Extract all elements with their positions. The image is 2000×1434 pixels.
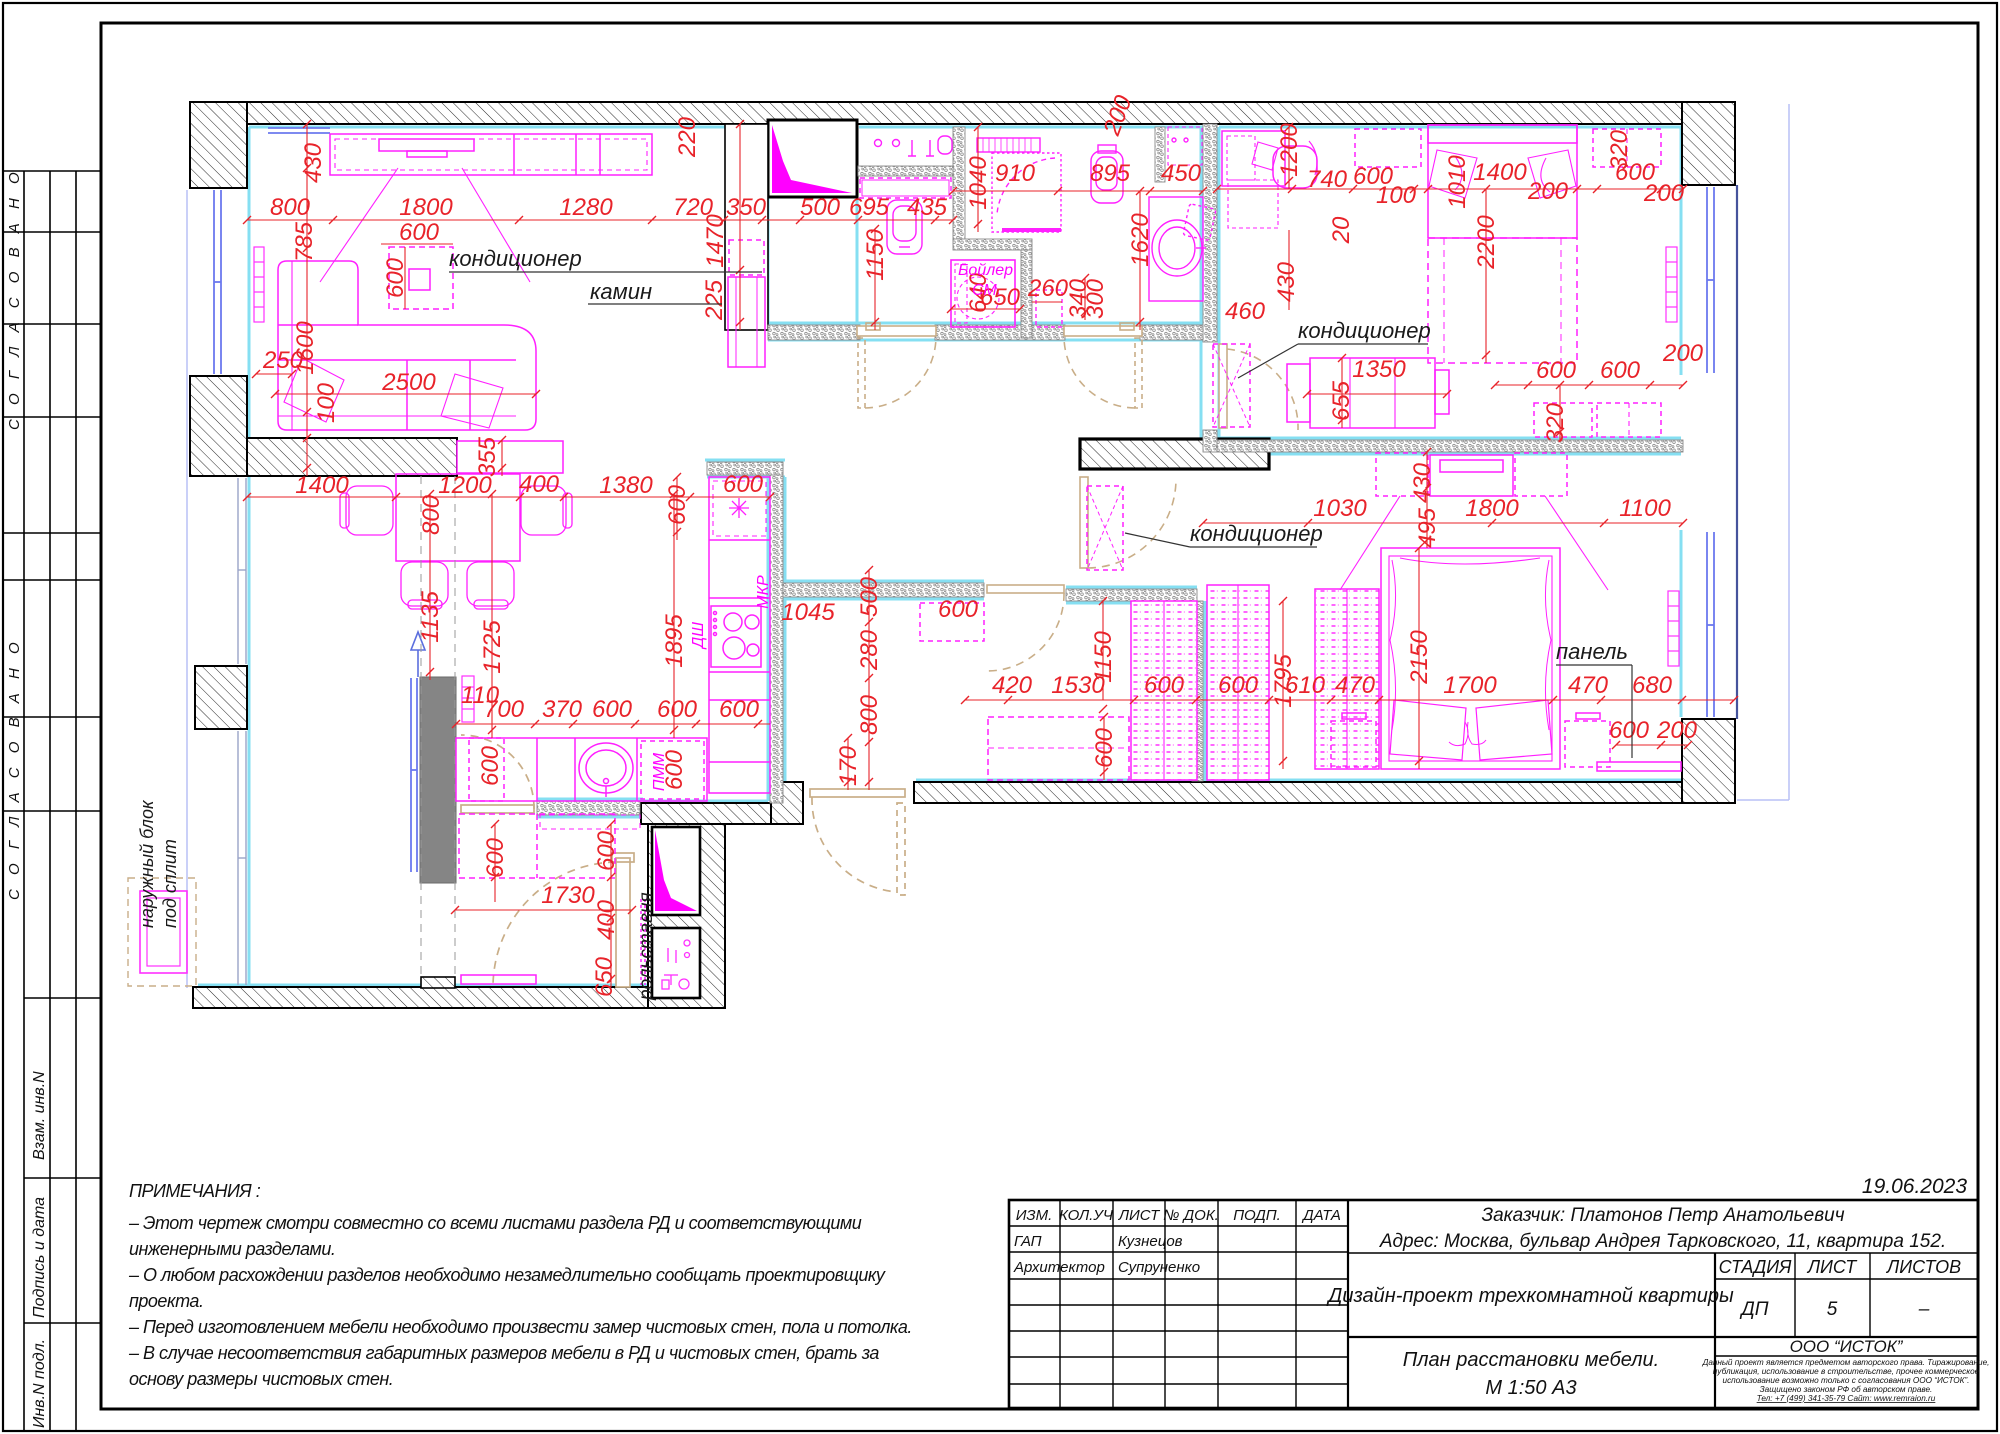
svg-text:кондиционер: кондиционер	[1190, 521, 1323, 546]
svg-text:№ ДОК.: № ДОК.	[1163, 1207, 1219, 1224]
svg-text:1030: 1030	[1313, 495, 1367, 522]
svg-text:740: 740	[1307, 166, 1348, 193]
svg-text:1795: 1795	[1270, 654, 1297, 708]
svg-text:использование возможно только: использование возможно только с согласов…	[1723, 1376, 1970, 1385]
svg-text:Адрес: Москва, бульвар Андрея: Адрес: Москва, бульвар Андрея Тарковског…	[1379, 1231, 1946, 1252]
svg-text:220: 220	[674, 116, 701, 158]
svg-text:1730: 1730	[541, 882, 595, 909]
svg-text:430: 430	[300, 142, 327, 183]
svg-text:600: 600	[593, 830, 620, 871]
svg-text:1470: 1470	[702, 214, 729, 268]
svg-text:1895: 1895	[661, 614, 688, 668]
svg-text:– В случае несоответствия габа: – В случае несоответствия габаритных раз…	[128, 1343, 879, 1363]
svg-text:600: 600	[1091, 727, 1118, 768]
svg-text:260: 260	[1027, 275, 1069, 302]
svg-text:20: 20	[1328, 216, 1355, 244]
svg-text:600: 600	[1600, 357, 1641, 384]
svg-text:– Этот чертеж смотри совместно: – Этот чертеж смотри совместно со всеми …	[128, 1213, 862, 1233]
svg-text:2200: 2200	[1473, 215, 1500, 270]
svg-text:400: 400	[519, 471, 560, 498]
svg-text:ИЗМ.: ИЗМ.	[1016, 1207, 1053, 1224]
svg-text:наружный блок: наружный блок	[137, 799, 157, 928]
svg-text:300: 300	[1082, 278, 1109, 319]
svg-text:1380: 1380	[599, 472, 653, 499]
svg-text:200: 200	[1643, 180, 1685, 207]
svg-text:План расстановки мебели.: План расстановки мебели.	[1403, 1349, 1659, 1371]
svg-text:– Перед изготовлением мебели н: – Перед изготовлением мебели необходимо …	[128, 1317, 912, 1337]
svg-text:инженерными разделами.: инженерными разделами.	[129, 1239, 335, 1259]
svg-text:320: 320	[1606, 129, 1633, 170]
svg-text:495: 495	[1414, 507, 1441, 548]
svg-text:100: 100	[313, 382, 340, 423]
svg-text:785: 785	[291, 221, 318, 262]
svg-text:450: 450	[1161, 160, 1202, 187]
svg-text:Архитектор: Архитектор	[1013, 1259, 1105, 1276]
svg-text:основу размеры чистовых стен.: основу размеры чистовых стен.	[129, 1369, 393, 1389]
svg-text:ПОДП.: ПОДП.	[1233, 1207, 1281, 1224]
svg-text:600: 600	[664, 484, 691, 525]
svg-text:1600: 1600	[292, 321, 319, 375]
svg-text:800: 800	[270, 194, 311, 221]
svg-text:кондиционер: кондиционер	[1298, 318, 1431, 343]
svg-text:1010: 1010	[1444, 155, 1471, 209]
svg-text:600: 600	[938, 596, 979, 623]
svg-text:600: 600	[382, 257, 409, 298]
svg-text:600: 600	[719, 696, 760, 723]
svg-text:600: 600	[657, 696, 698, 723]
svg-text:камин: камин	[590, 279, 652, 304]
svg-text:680: 680	[1632, 672, 1673, 699]
svg-text:1400: 1400	[1473, 159, 1527, 186]
svg-text:600: 600	[1144, 672, 1185, 699]
svg-text:ООО “ИСТОК”: ООО “ИСТОК”	[1790, 1337, 1904, 1356]
svg-text:– О любом расхождении разделов: – О любом расхождении разделов необходим…	[128, 1265, 886, 1285]
svg-text:600: 600	[1536, 357, 1577, 384]
svg-text:460: 460	[1225, 298, 1266, 325]
svg-text:100: 100	[1376, 182, 1417, 209]
svg-text:публикация, использование в ст: публикация, использование в строительств…	[1713, 1367, 1980, 1376]
svg-text:Тел: +7 (499) 341-35-79 Сайт:: Тел: +7 (499) 341-35-79 Сайт: www.remrai…	[1757, 1394, 1936, 1403]
svg-text:Дизайн-проект трехкомнатной кв: Дизайн-проект трехкомнатной квартиры	[1326, 1285, 1734, 1307]
svg-text:1800: 1800	[399, 194, 453, 221]
svg-text:1150: 1150	[862, 229, 889, 281]
svg-text:400: 400	[593, 899, 620, 940]
svg-text:420: 420	[992, 672, 1033, 699]
svg-text:1045: 1045	[781, 599, 835, 626]
svg-text:1725: 1725	[479, 620, 506, 674]
svg-text:280: 280	[856, 629, 883, 671]
svg-text:СТАДИЯ: СТАДИЯ	[1719, 1257, 1793, 1277]
svg-text:1700: 1700	[1443, 672, 1497, 699]
svg-text:320: 320	[1542, 402, 1569, 443]
svg-text:2150: 2150	[1406, 630, 1433, 685]
svg-text:ГАП: ГАП	[1014, 1233, 1042, 1250]
svg-text:рольставня: рольставня	[636, 892, 657, 1001]
svg-text:470: 470	[1568, 672, 1609, 699]
svg-text:800: 800	[856, 694, 883, 735]
svg-text:СМ: СМ	[972, 282, 997, 299]
svg-text:МКР: МКР	[755, 575, 772, 609]
svg-text:350: 350	[726, 194, 767, 221]
svg-text:1150: 1150	[1090, 631, 1117, 683]
svg-text:С О Г Л А С О В А Н О: С О Г Л А С О В А Н О	[6, 637, 23, 900]
svg-text:1135: 1135	[417, 591, 444, 643]
svg-text:М 1:50 А3: М 1:50 А3	[1485, 1377, 1576, 1399]
svg-text:1400: 1400	[295, 472, 349, 499]
svg-text:910: 910	[995, 160, 1036, 187]
svg-text:Подпись и дата: Подпись и дата	[31, 1197, 48, 1318]
svg-text:Супруненко: Супруненко	[1118, 1259, 1200, 1276]
svg-text:800: 800	[418, 494, 445, 535]
svg-text:ЛИСТ: ЛИСТ	[1807, 1257, 1859, 1277]
svg-text:430: 430	[1409, 462, 1436, 503]
svg-text:ДП: ДП	[1739, 1299, 1768, 1320]
svg-text:19.06.2023: 19.06.2023	[1862, 1175, 1967, 1198]
svg-text:–: –	[1918, 1299, 1930, 1320]
svg-text:проекта.: проекта.	[129, 1291, 203, 1311]
svg-text:600: 600	[477, 745, 504, 786]
svg-text:1200: 1200	[1276, 123, 1303, 177]
svg-text:650: 650	[591, 956, 618, 997]
svg-text:5: 5	[1827, 1299, 1838, 1320]
svg-text:кондиционер: кондиционер	[449, 246, 582, 271]
svg-text:Бойлер: Бойлер	[958, 262, 1013, 279]
svg-text:Взам. инв.N: Взам. инв.N	[31, 1071, 48, 1160]
svg-text:470: 470	[1335, 672, 1376, 699]
svg-text:435: 435	[907, 194, 948, 221]
svg-text:200: 200	[1527, 178, 1569, 205]
svg-text:200: 200	[1656, 717, 1698, 744]
svg-text:225: 225	[701, 279, 728, 321]
svg-text:2500: 2500	[381, 369, 436, 396]
svg-text:695: 695	[849, 194, 890, 221]
svg-text:Защищено законом РФ об авторск: Защищено законом РФ об авторском праве.	[1760, 1385, 1933, 1394]
svg-text:1280: 1280	[559, 194, 613, 221]
svg-text:600: 600	[399, 219, 440, 246]
svg-text:панель: панель	[1556, 639, 1628, 664]
svg-text:ПРИМЕЧАНИЯ :: ПРИМЕЧАНИЯ :	[129, 1181, 261, 1201]
svg-text:600: 600	[592, 696, 633, 723]
svg-text:370: 370	[542, 696, 583, 723]
svg-text:С О Г Л А С О В А Н О: С О Г Л А С О В А Н О	[6, 167, 23, 430]
svg-text:600: 600	[723, 471, 764, 498]
svg-text:ПММ: ПММ	[651, 752, 668, 791]
svg-text:под сплит: под сплит	[160, 839, 180, 928]
svg-text:600: 600	[1609, 717, 1650, 744]
svg-text:Инв.N подл.: Инв.N подл.	[31, 1339, 48, 1428]
svg-text:600: 600	[482, 837, 509, 878]
svg-text:ЛИСТ: ЛИСТ	[1118, 1207, 1161, 1224]
svg-text:655: 655	[1328, 380, 1355, 421]
svg-text:ДШ: ДШ	[690, 622, 707, 650]
svg-text:Данный проект является предмет: Данный проект является предметом авторск…	[1702, 1358, 1990, 1367]
svg-text:600: 600	[1218, 672, 1259, 699]
svg-text:Кузнецов: Кузнецов	[1118, 1233, 1183, 1250]
svg-text:1040: 1040	[965, 156, 992, 210]
svg-text:1100: 1100	[1619, 495, 1671, 522]
svg-text:895: 895	[1090, 160, 1131, 187]
svg-text:1800: 1800	[1465, 495, 1519, 522]
svg-text:1620: 1620	[1127, 213, 1154, 267]
svg-text:355: 355	[474, 436, 501, 477]
svg-text:200: 200	[1662, 340, 1704, 367]
svg-text:170: 170	[835, 745, 862, 786]
svg-text:500: 500	[800, 194, 841, 221]
svg-text:ДАТА: ДАТА	[1301, 1207, 1341, 1224]
svg-text:500: 500	[856, 576, 883, 617]
svg-text:430: 430	[1273, 261, 1300, 302]
svg-text:ЛИСТОВ: ЛИСТОВ	[1886, 1257, 1961, 1277]
svg-text:700: 700	[484, 696, 525, 723]
svg-text:КОЛ.УЧ: КОЛ.УЧ	[1059, 1207, 1114, 1224]
svg-text:Заказчик: Платонов Петр Анатол: Заказчик: Платонов Петр Анатольевич	[1481, 1205, 1844, 1226]
svg-text:1350: 1350	[1352, 356, 1406, 383]
